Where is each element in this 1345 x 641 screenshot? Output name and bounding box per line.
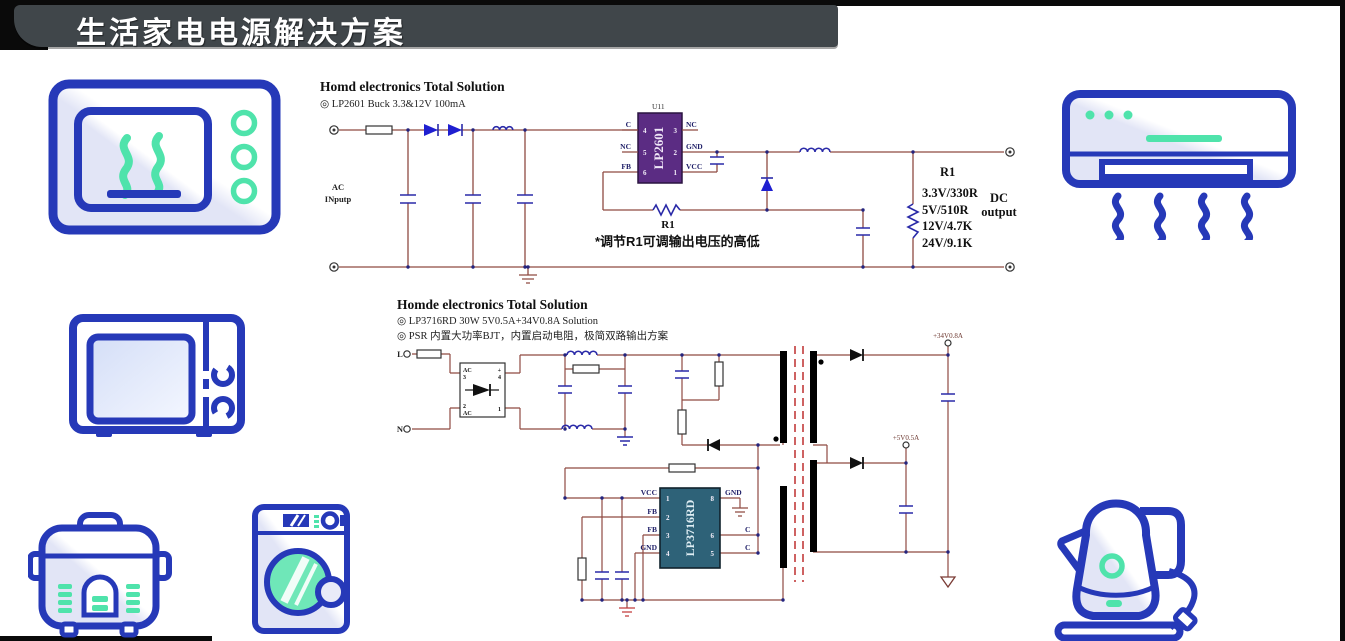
terminal-n-label: N (397, 424, 404, 434)
lp3716rd-ic: LP3716RD VCC FB FB GND 1 2 3 4 GND C C 8… (640, 488, 750, 568)
lp2601-ref: U11 (652, 102, 665, 111)
pin-number: 5 (643, 149, 647, 157)
pin-label: FB (621, 162, 631, 171)
circuit-lp3716rd: Homde electronics Total Solution ◎ LP371… (395, 296, 1005, 641)
r1-table-row: 12V/4.7K (922, 219, 973, 233)
pin-number: 2 (674, 149, 678, 157)
page-title: 生活家电电源解决方案 (76, 8, 406, 52)
pin-number: 6 (643, 169, 647, 177)
pin-number: 4 (666, 550, 670, 558)
air-conditioner-icon (1060, 88, 1305, 240)
header-bar: 生活家电电源解决方案 (14, 5, 838, 47)
slide: 生活家电电源解决方案 (0, 0, 1345, 641)
rice-cooker-icon (28, 512, 173, 640)
slide-right-border (1340, 0, 1345, 641)
pin-number: 3 (666, 532, 670, 540)
pin-label: NC (620, 142, 631, 151)
pin-number: 4 (643, 127, 647, 135)
r1-adjust-label: R1 (661, 219, 674, 231)
pin-label: VCC (641, 488, 657, 497)
bridge-label: 1 (498, 407, 501, 413)
bridge-label: AC (463, 411, 472, 417)
circuit1-subtitle: ◎ LP2601 Buck 3.3&12V 100mA (320, 99, 466, 110)
circuit-lp2601: Homd electronics Total Solution ◎ LP2601… (318, 78, 1028, 288)
pin-number: 3 (674, 127, 678, 135)
pin-label: VCC (686, 162, 702, 171)
pin-label: C (745, 525, 750, 534)
lp2601-name: LP2601 (651, 127, 666, 170)
circuit2-title: Homde electronics Total Solution (397, 297, 588, 312)
output-34v-label: +34V0.8A (933, 332, 963, 340)
pin-label: C (626, 120, 631, 129)
dc-output-label: DC (990, 191, 1008, 205)
microwave-icon (68, 313, 248, 445)
ac-input-label: AC (332, 182, 344, 192)
bridge-label: + (498, 368, 502, 374)
microwave-oven-icon (47, 78, 282, 236)
terminal-l-label: L (397, 349, 403, 359)
pin-label: FB (647, 525, 657, 534)
pin-number: 2 (666, 514, 670, 522)
circuit1-title: Homd electronics Total Solution (320, 79, 505, 94)
output-5v-label: +5V0.5A (893, 434, 919, 442)
bridge-label: 4 (498, 375, 501, 381)
pin-label: FB (647, 507, 657, 516)
pin-label: NC (686, 120, 697, 129)
pin-number: 5 (711, 550, 715, 558)
pin-number: 1 (666, 495, 670, 503)
r1-table-title: R1 (940, 165, 955, 179)
pin-label: GND (686, 142, 703, 151)
r1-table-row: 24V/9.1K (922, 236, 973, 250)
pin-label: GND (640, 543, 657, 552)
r1-note: *调节R1可调输出电压的高低 (595, 234, 760, 249)
pin-number: 6 (711, 532, 715, 540)
bridge-label: AC (463, 368, 472, 374)
lp2601-ic: U11 LP2601 C NC FB 4 5 6 NC GND VCC 3 2 … (620, 102, 703, 183)
circuit2-bullet: ◎ LP3716RD 30W 5V0.5A+34V0.8A Solution (397, 316, 599, 327)
lp3716rd-name: LP3716RD (683, 499, 697, 556)
r1-table-row: 3.3V/330R (922, 186, 979, 200)
pin-label: C (745, 543, 750, 552)
washing-machine-icon (250, 502, 352, 638)
bridge-label: 2 (463, 404, 466, 410)
electric-kettle-icon (1028, 471, 1223, 641)
pin-number: 8 (711, 495, 715, 503)
bridge-label: 3 (463, 375, 466, 381)
dc-output-label: output (981, 205, 1017, 219)
r1-table-row: 5V/510R (922, 203, 970, 217)
ac-input-label: INputp (325, 194, 352, 204)
circuit2-bullet: ◎ PSR 内置大功率BJT，内置启动电阻，极简双路输出方案 (397, 329, 669, 342)
pin-number: 1 (674, 169, 678, 177)
pin-label: GND (725, 488, 742, 497)
